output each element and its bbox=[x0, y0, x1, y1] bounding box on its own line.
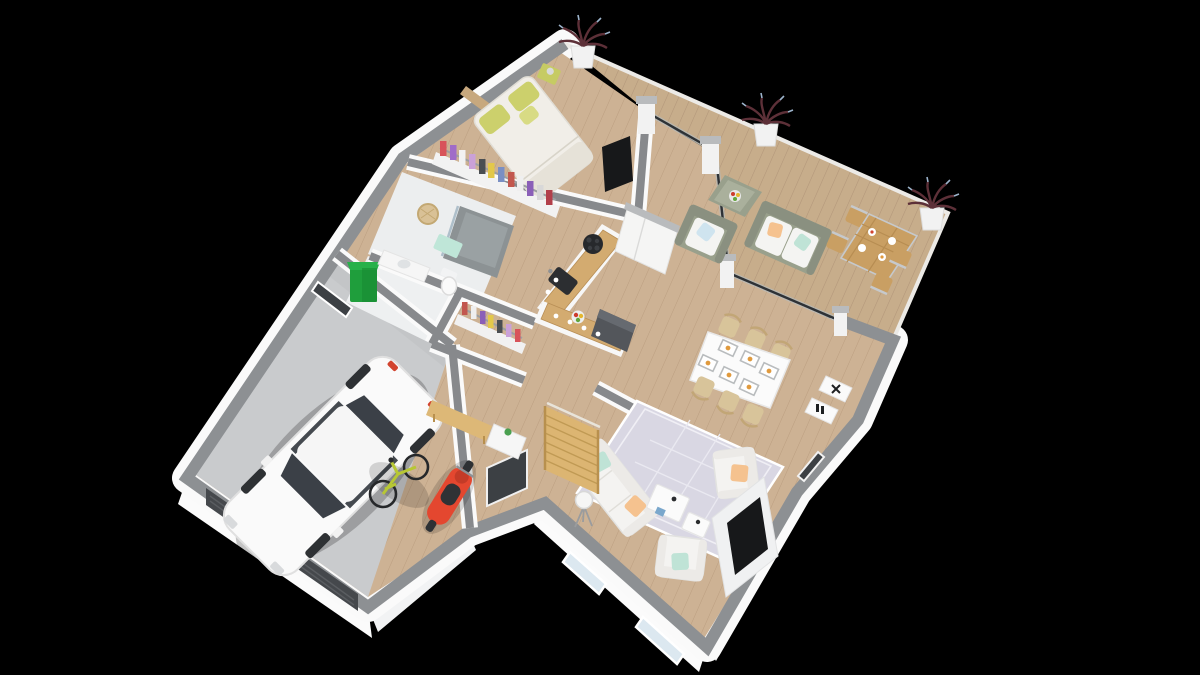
floorplan-svg bbox=[0, 0, 1200, 675]
sideboard-candles bbox=[816, 404, 819, 412]
armchair-bottom bbox=[655, 534, 708, 582]
fruit-bowl bbox=[572, 311, 585, 324]
cabinet-plant bbox=[504, 428, 511, 435]
vanity-basin bbox=[398, 260, 411, 269]
toilet-bowl bbox=[442, 277, 457, 295]
floorplan-render bbox=[0, 0, 1200, 675]
wheelie-bin bbox=[347, 262, 380, 302]
cooktop bbox=[583, 234, 603, 254]
